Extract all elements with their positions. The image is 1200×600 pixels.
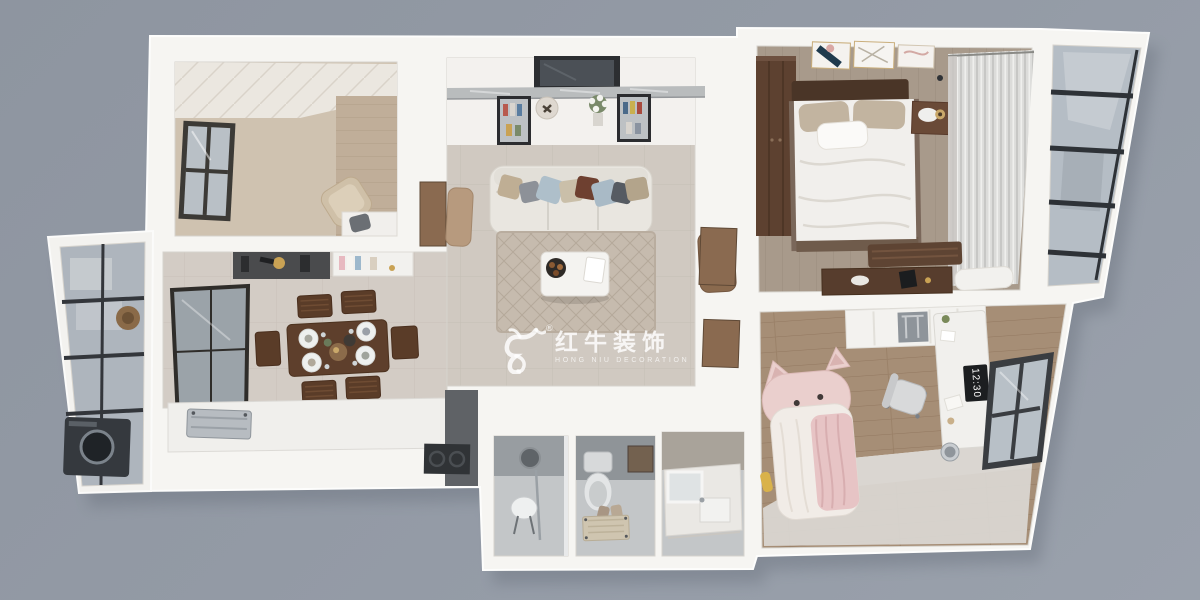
room-bathroom — [494, 432, 744, 556]
display-cabinet-left — [497, 96, 531, 145]
sofa — [490, 166, 652, 234]
kids-room-door — [702, 319, 740, 367]
marble-media-console — [447, 86, 705, 99]
bed-end-bench — [868, 241, 963, 267]
range-hood — [187, 409, 252, 439]
round-mirror — [520, 448, 540, 468]
toilet — [584, 452, 612, 511]
study-window — [178, 121, 235, 222]
storage-shelf — [70, 258, 112, 290]
vanity-area — [662, 432, 744, 556]
clock-time: 12:30 — [969, 368, 982, 399]
tv — [534, 56, 620, 90]
wall-plate-decor — [536, 97, 558, 119]
shower-stool — [511, 497, 537, 519]
toilet-room — [576, 436, 655, 556]
room-dining — [163, 252, 447, 420]
bath-mat — [583, 515, 630, 541]
entry-door — [420, 182, 446, 246]
room-master-bedroom — [756, 40, 1034, 295]
vanity-mirror — [899, 269, 917, 288]
washing-machine — [63, 417, 131, 477]
desk-clock: 12:30 — [963, 364, 989, 402]
room-living — [445, 56, 736, 386]
vanity-mirror — [668, 472, 702, 502]
dining-chair — [391, 326, 419, 359]
nightstand — [911, 101, 950, 134]
bathroom-window — [628, 446, 653, 472]
window-seat-cushion — [954, 266, 1013, 291]
dark-sideboard — [233, 252, 330, 279]
faucet — [700, 498, 705, 503]
pink-blanket — [810, 412, 860, 511]
floorplan-scene: 12:30 — [0, 0, 1200, 600]
cooktop — [424, 444, 471, 475]
display-cabinet-right — [617, 94, 651, 142]
ceiling-spotlight — [937, 75, 943, 81]
study-desk — [342, 212, 397, 236]
floorplan-render: 12:30 — [0, 0, 1200, 600]
sink — [700, 498, 730, 522]
white-bookshelf — [333, 252, 413, 276]
room-kids: 12:30 — [749, 304, 1066, 548]
dining-chair — [255, 331, 281, 366]
dresser — [822, 267, 952, 295]
window-partition — [172, 286, 248, 420]
shower-room — [494, 436, 568, 556]
master-bedroom-door — [699, 227, 737, 285]
armchair-left — [445, 187, 473, 246]
room-laundry-balcony — [60, 242, 145, 486]
double-bed — [789, 79, 922, 252]
coffee-table — [541, 252, 609, 304]
pillow — [817, 121, 869, 150]
room-study — [175, 62, 397, 236]
